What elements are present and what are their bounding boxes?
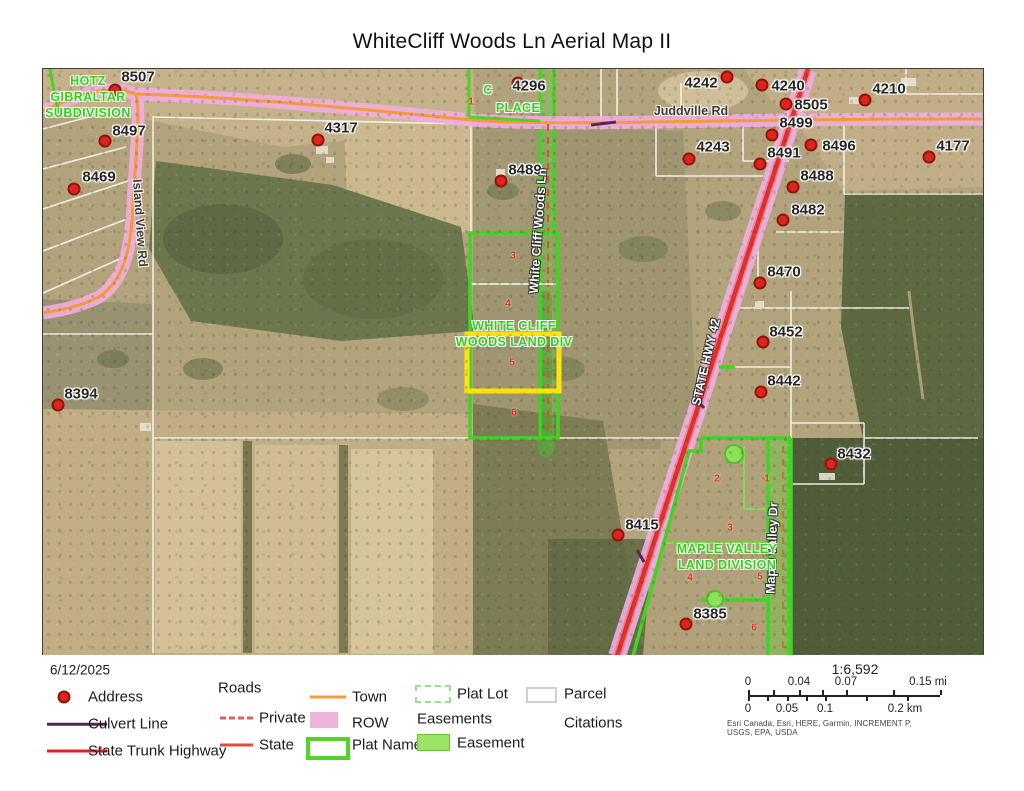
address-dot (780, 98, 793, 111)
legend-row-label: ROW (352, 715, 389, 732)
plat-name-line: WOODS LAND DIV (456, 334, 573, 350)
address-label: 8496 (822, 138, 855, 155)
scale-tick (822, 690, 824, 695)
legend-culvert-label: Culvert Line (88, 716, 168, 733)
address-dot (805, 139, 818, 152)
plat-name-line: SUBDIVISION (45, 105, 131, 121)
scale-ratio: 1:6,592 (832, 661, 879, 677)
plat-name-label: PLACE (496, 100, 540, 116)
road-label: White Cliff Woods Ln (527, 168, 550, 294)
lot-number: 4 (505, 299, 511, 310)
road-label: Juddville Rd (654, 104, 728, 118)
plat-name-line: MAPLE VALLEY (677, 541, 777, 557)
address-label: 4317 (324, 120, 357, 137)
lot-number: 1 (468, 97, 474, 108)
scale-tick (866, 696, 868, 701)
address-dot (312, 134, 325, 147)
legend-plat-name-label: Plat Name (352, 737, 422, 754)
legend-town-label: Town (352, 689, 387, 706)
lot-number: 4 (687, 573, 693, 584)
address-label: 8488 (800, 168, 833, 185)
address-dot (495, 175, 508, 188)
address-label: 8499 (779, 115, 812, 132)
scale-tick (787, 696, 789, 701)
plat-name-symbol (306, 737, 350, 760)
address-label: 4177 (936, 138, 969, 155)
plat-name-label: WHITE CLIFFWOODS LAND DIV (456, 318, 573, 350)
address-label: 8469 (82, 169, 115, 186)
address-dot (68, 183, 81, 196)
address-dot (766, 129, 779, 142)
scale-tick (893, 690, 895, 695)
address-label: 8491 (767, 145, 800, 162)
map-report-page: WhiteCliff Woods Ln Aerial Map II (0, 0, 1024, 791)
plat-name-line: LAND DIVISION (677, 557, 777, 573)
lot-number: 3 (727, 523, 733, 534)
scale-tick (846, 690, 848, 695)
scale-mi-0: 0 (745, 676, 751, 688)
address-label: 8432 (837, 446, 870, 463)
address-label: 8482 (791, 202, 824, 219)
address-dot (859, 94, 872, 107)
scale-tick (767, 696, 769, 701)
scale-tick (773, 690, 775, 695)
plat-name-line: C (483, 82, 492, 98)
scale-tick (799, 690, 801, 695)
scale-km-3: 0.2 km (888, 703, 923, 715)
address-label: 8452 (769, 324, 802, 341)
lot-number: 6 (751, 623, 757, 634)
plat-lot-symbol (415, 685, 451, 703)
legend-panel: 6/12/2025 Address Culvert Line State Tru… (0, 655, 1024, 791)
lot-number: 5 (509, 358, 515, 369)
address-dot (754, 158, 767, 171)
scale-tick (825, 696, 827, 701)
address-dot (755, 386, 768, 399)
address-dot (754, 277, 767, 290)
lot-number: 2 (714, 474, 720, 485)
page-title: WhiteCliff Woods Ln Aerial Map II (0, 30, 1024, 54)
lot-number: 1 (764, 474, 770, 485)
scale-km-0: 0 (745, 703, 751, 715)
easement-symbol (417, 734, 450, 751)
plat-name-line: HOTZ (45, 73, 131, 89)
legend-roads-header: Roads (218, 680, 261, 697)
address-symbol (58, 691, 71, 704)
address-label: 8505 (794, 97, 827, 114)
scale-tick (748, 690, 750, 695)
legend-easements-header: Easements (417, 711, 492, 728)
scale-tick (806, 696, 808, 701)
address-dot (52, 399, 65, 412)
address-dot (787, 181, 800, 194)
scale-mi-3: 0.15 mi (909, 676, 947, 688)
legend-sth-label: State Trunk Highway (88, 743, 226, 760)
lot-number: 6 (511, 408, 517, 419)
address-label: 8415 (625, 517, 658, 534)
legend-private-label: Private (259, 710, 306, 727)
legend-citations-label: Citations (564, 715, 622, 732)
address-label: 8385 (693, 606, 726, 623)
address-dot (612, 529, 625, 542)
plat-name-label: C (483, 82, 492, 98)
state-road-symbol (220, 744, 253, 747)
legend-address-label: Address (88, 689, 143, 706)
address-dot (825, 458, 838, 471)
address-label: 8497 (112, 123, 145, 140)
road-label: Island View Rd (130, 179, 150, 268)
address-label: 8442 (767, 373, 800, 390)
address-dot (923, 151, 936, 164)
map-date: 6/12/2025 (50, 663, 110, 678)
address-dot (721, 71, 734, 84)
scale-tick (748, 696, 750, 701)
scale-tick (940, 690, 942, 695)
scale-km-1: 0.05 (776, 703, 798, 715)
address-label: 4210 (872, 81, 905, 98)
plat-name-line: GIBRALTAR (45, 89, 131, 105)
address-dot (680, 618, 693, 631)
map-canvas: 8507849784694317839442968489424242408505… (42, 68, 984, 657)
address-label: 4296 (512, 78, 545, 95)
address-label: 4243 (696, 139, 729, 156)
plat-name-label: MAPLE VALLEYLAND DIVISION (677, 541, 777, 573)
row-symbol (310, 712, 338, 728)
plat-name-line: WHITE CLIFF (456, 318, 573, 334)
address-dot (757, 336, 770, 349)
road-label: STATE HWY 42 (689, 317, 723, 407)
legend-plat-lot-label: Plat Lot (457, 686, 508, 703)
plat-name-line: PLACE (496, 100, 540, 116)
legend-parcel-label: Parcel (564, 686, 607, 703)
scale-mi-1: 0.04 (788, 676, 810, 688)
town-road-symbol (310, 696, 346, 699)
legend-state-label: State (259, 737, 294, 754)
map-attribution: Esri Canada, Esri, HERE, Garmin, INCREME… (727, 719, 925, 737)
lot-number: 5 (757, 572, 763, 583)
address-dot (683, 153, 696, 166)
scale-tick (907, 696, 909, 701)
address-label: 8394 (64, 386, 97, 403)
scale-bar (748, 695, 940, 697)
scale-km-2: 0.1 (817, 703, 833, 715)
address-dot (777, 214, 790, 227)
lot-number: 3 (510, 251, 516, 262)
legend-easement-label: Easement (457, 735, 525, 752)
address-label: 4242 (684, 75, 717, 92)
scale-mi-2: 0.07 (835, 676, 857, 688)
parcel-symbol (526, 687, 557, 703)
address-label: 8470 (767, 264, 800, 281)
plat-name-label: HOTZGIBRALTARSUBDIVISION (45, 73, 131, 121)
map-label-layer: 8507849784694317839442968489424242408505… (43, 69, 983, 656)
address-dot (756, 79, 769, 92)
private-road-symbol (220, 717, 253, 720)
address-dot (99, 135, 112, 148)
address-label: 4240 (771, 78, 804, 95)
